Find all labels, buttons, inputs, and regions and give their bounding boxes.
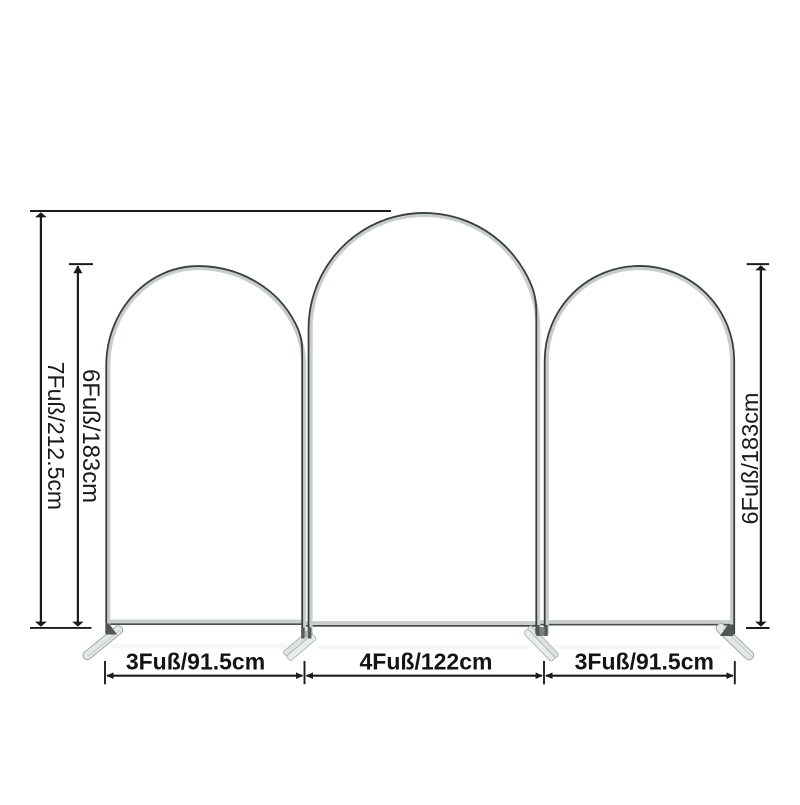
svg-text:6Fuß/183cm: 6Fuß/183cm (77, 369, 104, 503)
svg-text:3Fuß/91.5cm: 3Fuß/91.5cm (126, 649, 265, 675)
svg-text:3Fuß/91.5cm: 3Fuß/91.5cm (575, 649, 714, 675)
svg-text:4Fuß/122cm: 4Fuß/122cm (360, 649, 493, 675)
svg-text:7Fuß/212.5cm: 7Fuß/212.5cm (43, 362, 69, 510)
svg-text:6Fuß/183cm: 6Fuß/183cm (737, 393, 763, 525)
